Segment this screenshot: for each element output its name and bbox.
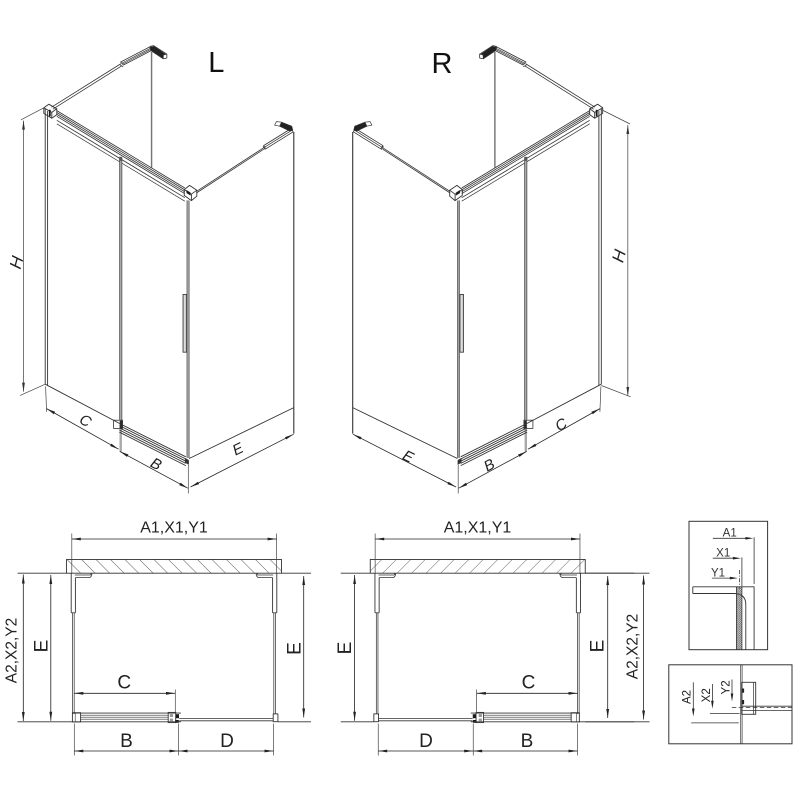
svg-text:R: R [432,48,453,80]
svg-text:A2: A2 [682,690,694,704]
svg-text:Y2: Y2 [721,680,733,694]
svg-text:D: D [419,731,433,752]
svg-text:X2: X2 [701,688,713,702]
svg-text:E: E [284,642,305,655]
svg-text:A1: A1 [723,528,737,540]
svg-text:L: L [208,47,224,79]
svg-text:A2,X2,Y2: A2,X2,Y2 [4,618,21,684]
svg-text:D: D [220,731,234,752]
svg-text:E: E [587,640,608,653]
svg-text:A1,X1,Y1: A1,X1,Y1 [444,520,512,537]
svg-text:A1,X1,Y1: A1,X1,Y1 [140,520,208,537]
svg-text:C: C [522,673,536,694]
svg-text:X1: X1 [716,547,730,559]
svg-text:B: B [521,731,534,752]
svg-text:B: B [120,731,133,752]
svg-text:E: E [31,640,52,653]
svg-text:C: C [117,673,131,694]
svg-text:A2,X2,Y2: A2,X2,Y2 [624,614,641,680]
svg-text:E: E [335,642,356,655]
